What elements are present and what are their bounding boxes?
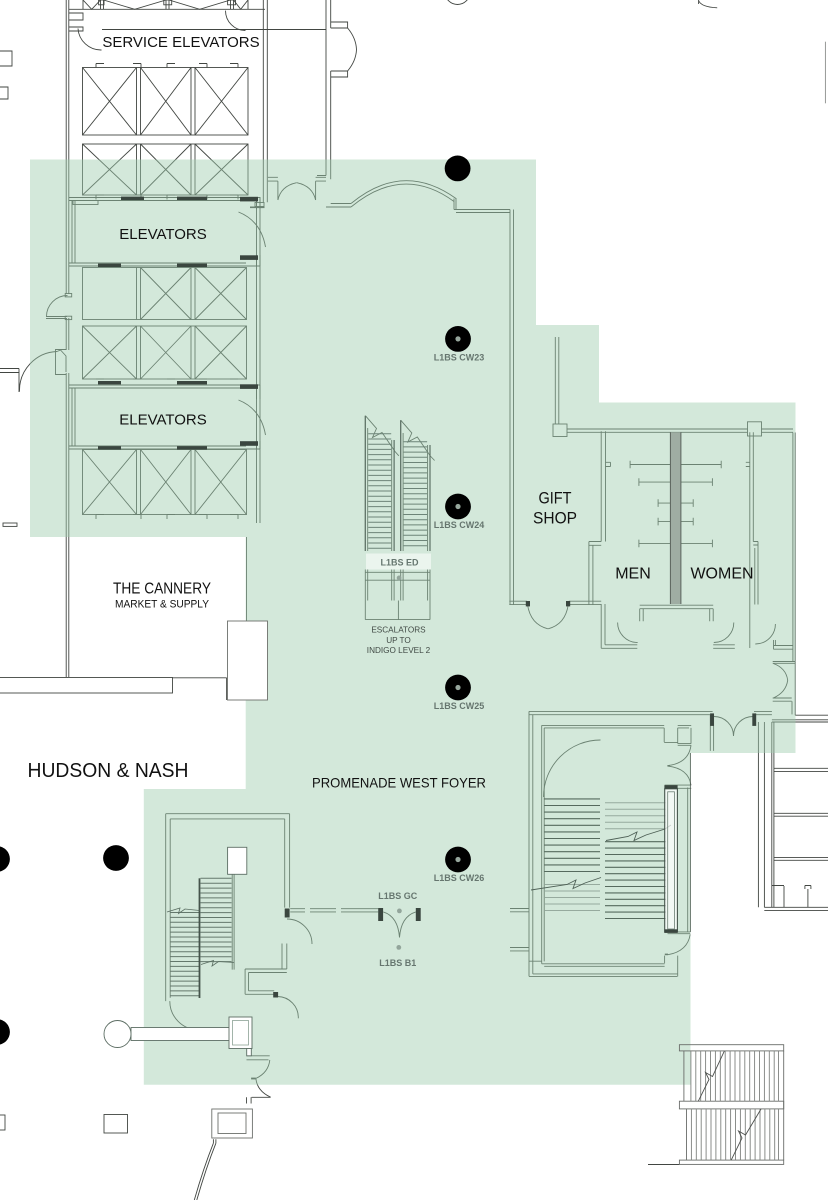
svg-text:ELEVATORS: ELEVATORS <box>119 412 207 429</box>
svg-text:L1BS B1: L1BS B1 <box>379 958 416 968</box>
svg-text:L1BS CW26: L1BS CW26 <box>434 873 485 883</box>
svg-text:MEN: MEN <box>615 566 651 583</box>
svg-text:INDIGO LEVEL 2: INDIGO LEVEL 2 <box>367 646 431 655</box>
svg-text:GIFT: GIFT <box>539 490 572 508</box>
svg-text:PROMENADE WEST FOYER: PROMENADE WEST FOYER <box>312 775 486 791</box>
svg-text:MARKET & SUPPLY: MARKET & SUPPLY <box>115 599 209 611</box>
svg-text:L1BS CW23: L1BS CW23 <box>434 353 485 363</box>
svg-text:SERVICE ELEVATORS: SERVICE ELEVATORS <box>102 34 259 51</box>
svg-text:L1BS ED: L1BS ED <box>380 558 419 568</box>
svg-text:THE CANNERY: THE CANNERY <box>113 581 211 598</box>
svg-text:ELEVATORS: ELEVATORS <box>119 226 207 243</box>
svg-text:HUDSON & NASH: HUDSON & NASH <box>28 760 189 782</box>
svg-text:L1BS CW24: L1BS CW24 <box>434 520 485 530</box>
svg-text:WOMEN: WOMEN <box>690 566 753 583</box>
svg-text:SHOP: SHOP <box>533 510 577 528</box>
svg-text:ESCALATORS: ESCALATORS <box>371 626 426 635</box>
svg-text:L1BS CW25: L1BS CW25 <box>434 701 485 711</box>
svg-text:L1BS GC: L1BS GC <box>378 891 418 901</box>
svg-text:UP TO: UP TO <box>386 636 411 645</box>
